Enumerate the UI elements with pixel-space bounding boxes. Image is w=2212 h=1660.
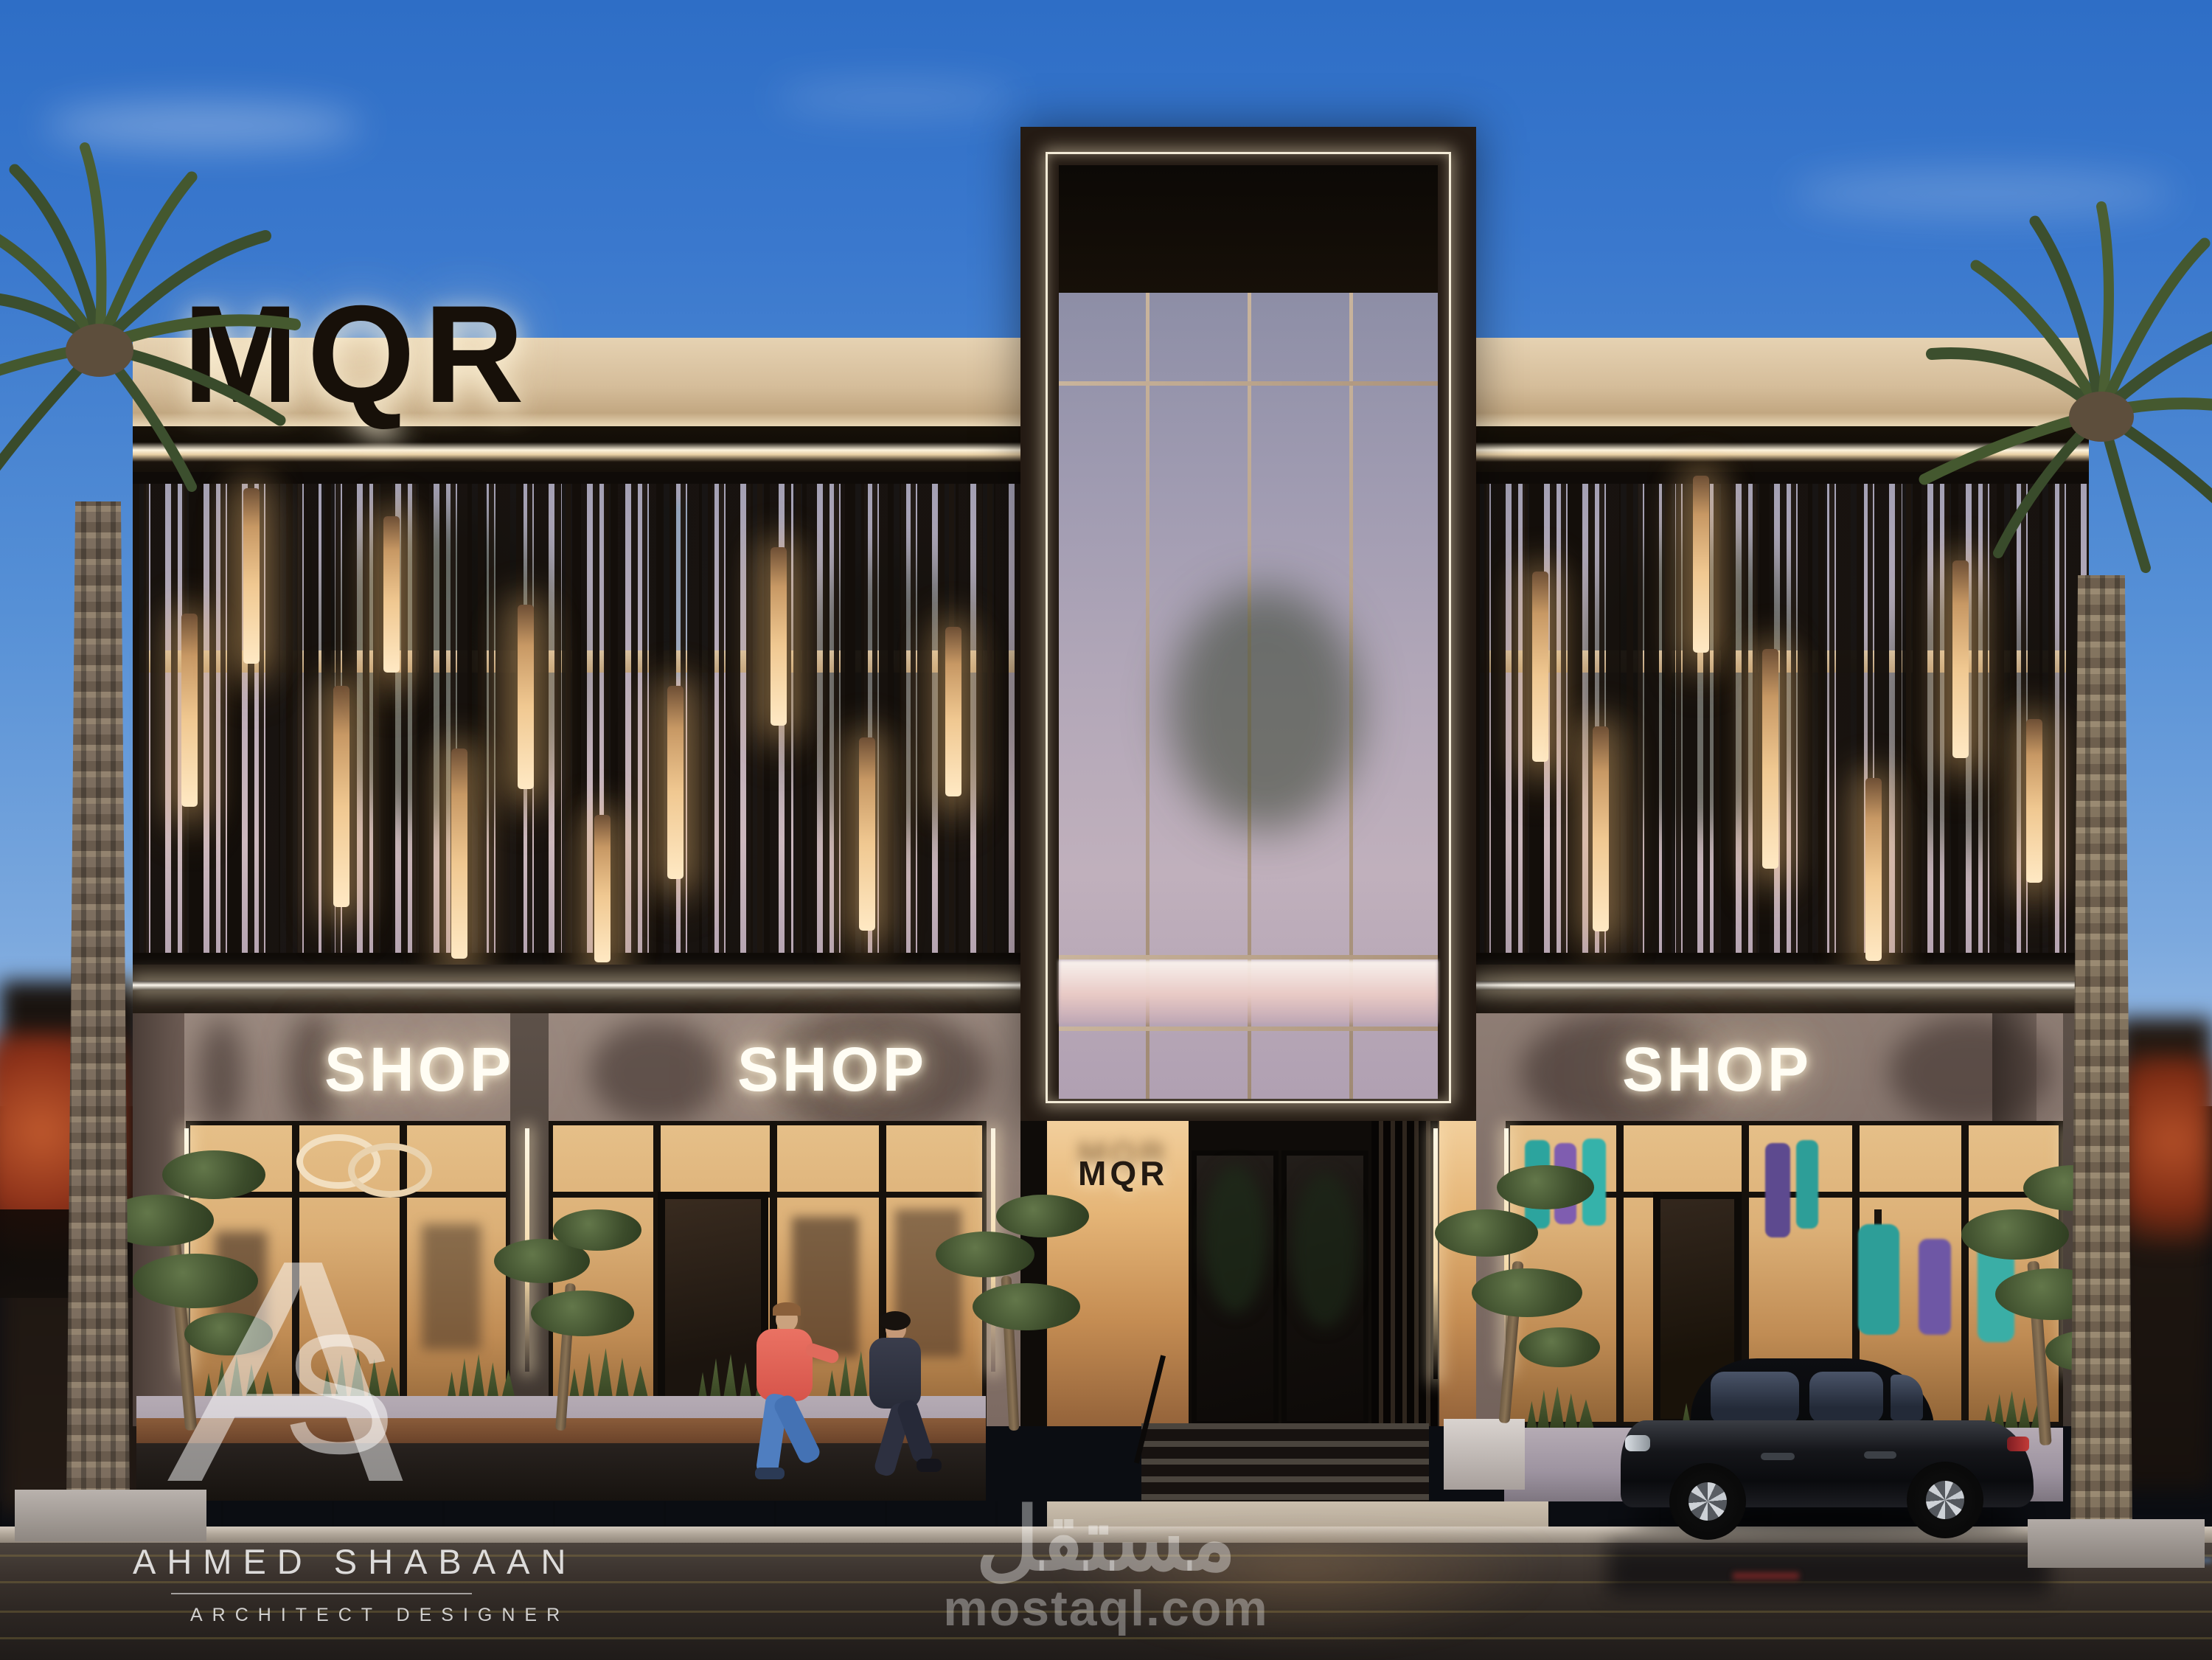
palm-fronds [1829,170,2212,642]
shop-sign-2: SHOP [737,1034,928,1105]
tree-shadow [590,1021,723,1124]
pendant-light [1593,726,1609,931]
cloud [774,81,1018,115]
tree-reflection [1292,1173,1358,1327]
person-sitting-woman [859,1317,955,1479]
tree-reflection [1203,1165,1267,1313]
pendant-light [1762,649,1778,869]
entrance-door-left [1192,1150,1279,1426]
pendant-light [1693,476,1709,653]
palm-tree-right [1829,192,2212,1563]
pendant-light [667,686,684,879]
pendant-light [771,547,787,726]
palm-fronds [0,103,472,575]
garment-teal [1796,1140,1818,1229]
bonsai-tree [1423,1158,1600,1423]
car-door-handle [1761,1453,1795,1460]
bonsai-tree [487,1209,649,1431]
watermark-platform-arabic: مستقل [922,1488,1290,1590]
entrance-door-right [1281,1150,1368,1426]
car-window [1711,1372,1799,1425]
pendant-light [1532,572,1548,762]
watermark-divider [171,1593,472,1594]
white-planter-box [1444,1419,1525,1490]
car-headlight [1625,1435,1650,1451]
entrance-tower [1020,127,1476,1124]
pendant-light [859,737,875,931]
person-sitting-man [743,1307,832,1476]
tower-glass [1059,293,1438,1099]
pendant-light [518,605,534,789]
palm-planter [2028,1519,2205,1568]
car-wheel-front [1669,1463,1746,1540]
pendant-light [945,627,961,796]
watermark-platform-domain: mostaql.com [922,1580,1290,1637]
entrance-logo: MQR [1078,1153,1168,1193]
tower-mullion [1059,381,1438,386]
palm-trunk-texture [2070,575,2132,1534]
cloud-reflection-band [1059,960,1438,1024]
palm-reflection [1169,588,1361,831]
watermark-designer-title: ARCHITECT DESIGNER [190,1605,569,1626]
tower-header [1059,165,1438,298]
tower-mullion [1059,955,1438,959]
tower-mullion [1059,1027,1438,1031]
architectural-render: MQR SHOP SHOP [0,0,2212,1660]
shop-sign-3: SHOP [1622,1034,1812,1105]
pendant-light [594,815,611,962]
watermark-designer-name: AHMED SHABAAN [133,1541,577,1582]
palm-trunk-texture [66,501,130,1504]
garment-purple [1765,1143,1790,1237]
watermark-monogram: A S [188,1224,468,1534]
monogram-letter-s: S [282,1310,395,1479]
taillight-reflection [1733,1572,1799,1580]
